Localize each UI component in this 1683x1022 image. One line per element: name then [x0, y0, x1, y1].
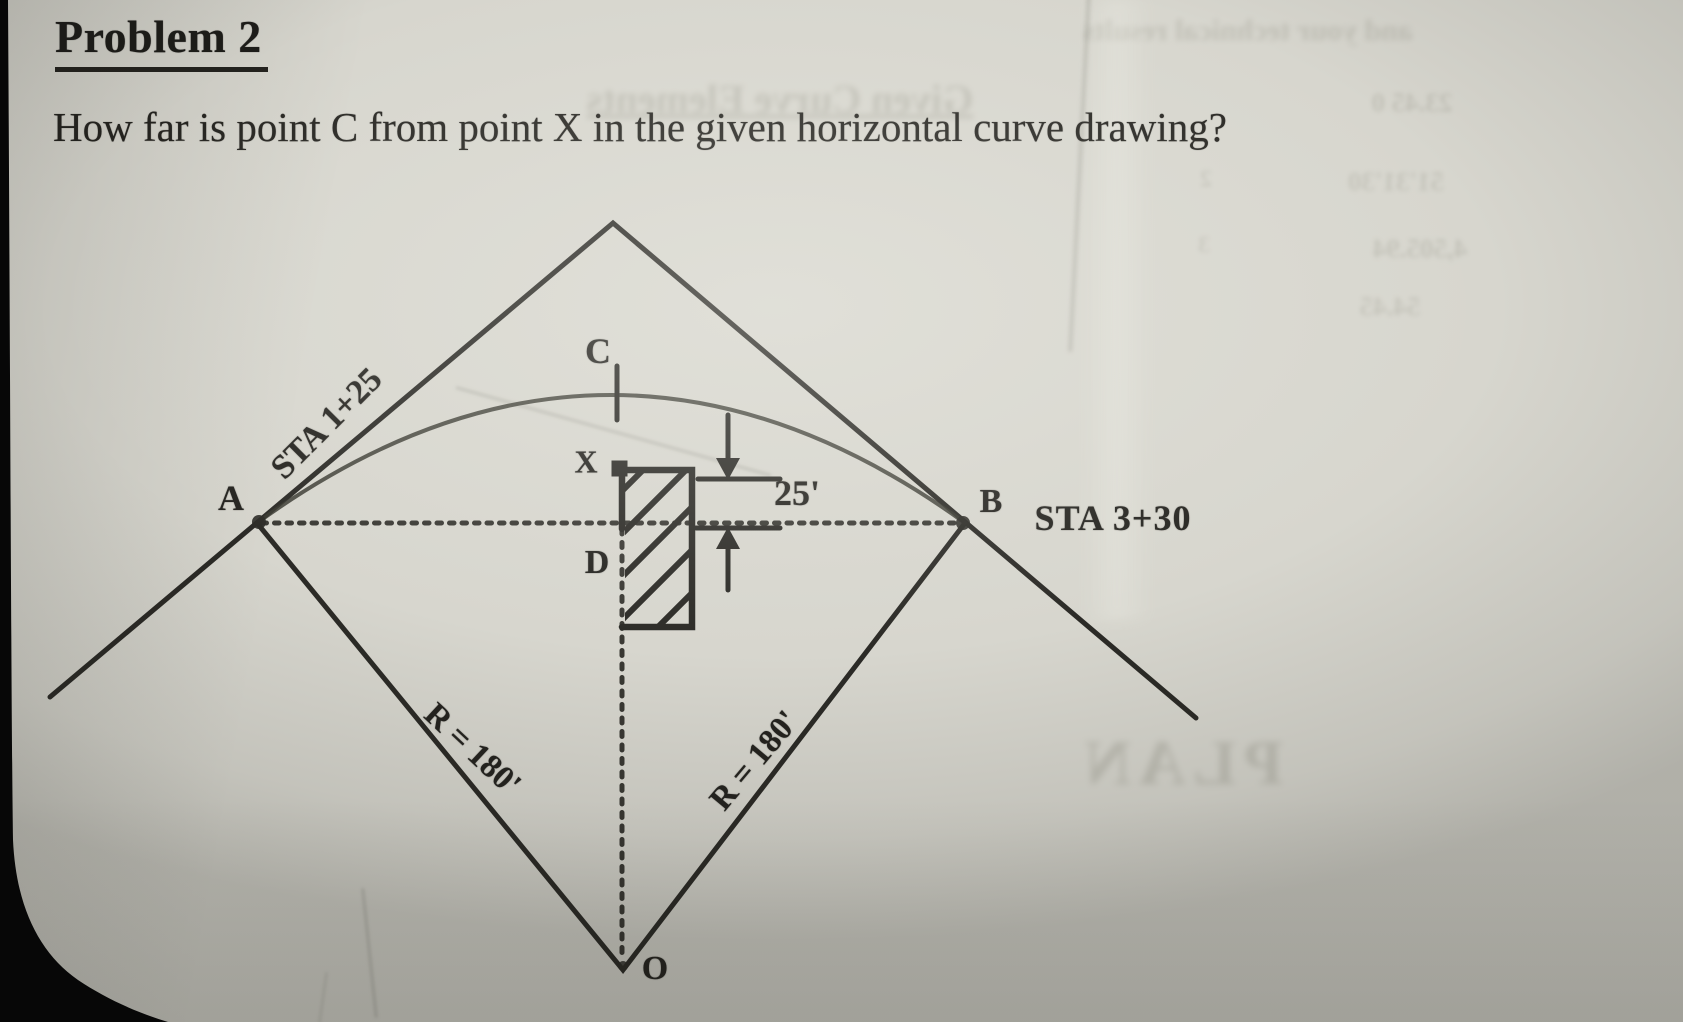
point-d-label: D [585, 544, 610, 582]
point-a-label: A [218, 477, 244, 519]
point-o-label: O [642, 950, 668, 988]
point-x-label: X [574, 444, 597, 481]
point-a-junction [252, 515, 266, 529]
point-b-junction [956, 516, 970, 530]
station-b-label: STA 3+30 [1035, 497, 1192, 539]
question-text: How far is point C from point X in the g… [53, 103, 1227, 151]
point-o-junction [618, 961, 628, 971]
offset-dimension-label: 25' [774, 472, 820, 514]
document-photo: Given Curve Elements and your technical … [0, 0, 1683, 1022]
point-x-marker [612, 461, 628, 477]
curve-diagram [0, 0, 1683, 1022]
point-b-label: B [980, 483, 1003, 521]
problem-title: Problem 2 [55, 10, 268, 72]
radius-lines [257, 523, 965, 970]
point-c-label: C [585, 330, 611, 372]
